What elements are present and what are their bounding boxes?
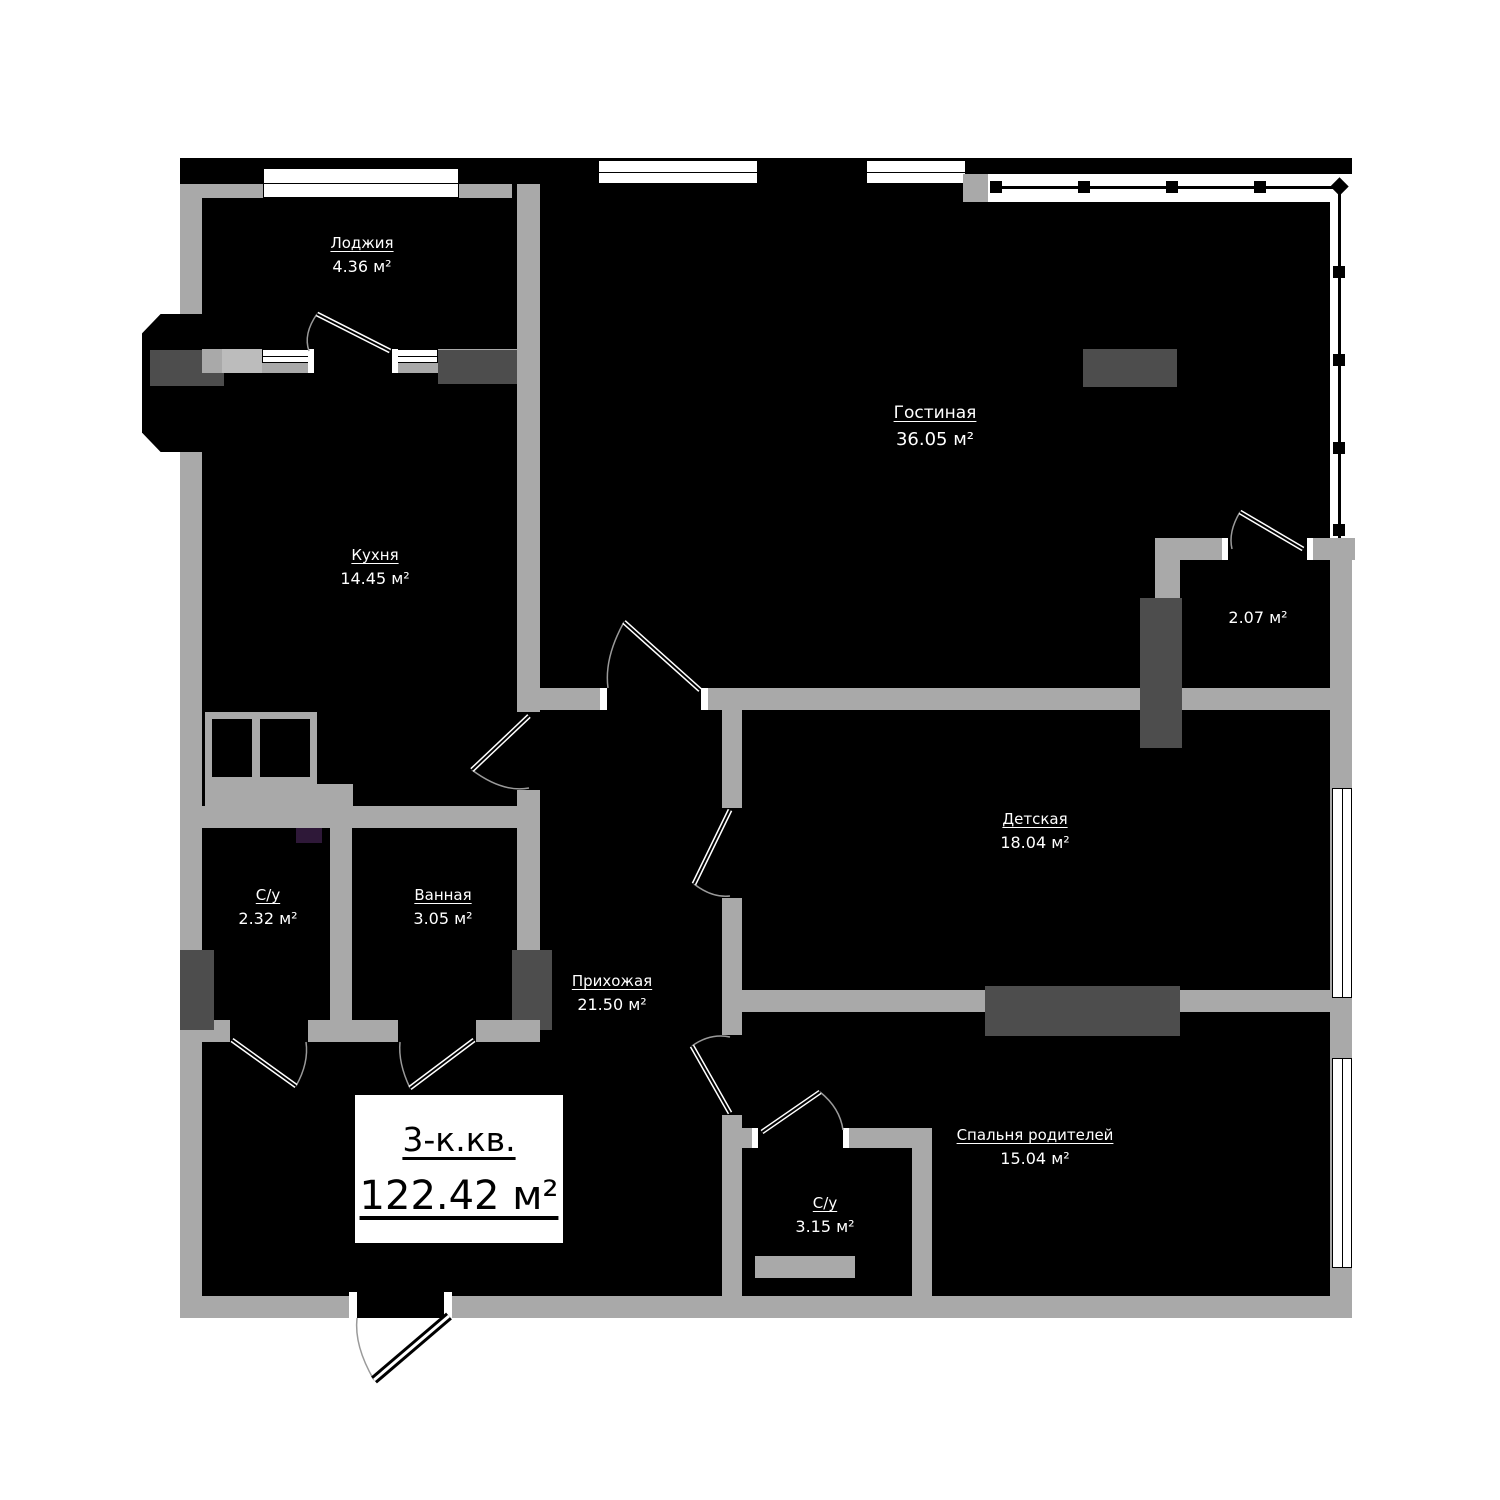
room-name: Прихожая	[572, 970, 652, 993]
room-name: Гостиная	[894, 400, 977, 426]
dark-block-bath-right	[512, 950, 552, 1030]
room-area: 2.07 м²	[1228, 606, 1287, 631]
room-label-kitchen: Кухня 14.45 м²	[340, 544, 409, 592]
room-label-children: Детская 18.04 м²	[1000, 808, 1069, 856]
room-label-wc2: С/у 3.15 м²	[795, 1192, 854, 1240]
room-area: 36.05 м²	[894, 426, 977, 454]
entrance-jamb	[444, 1292, 452, 1320]
room-name: Ванная	[413, 884, 472, 907]
door-leaf-entrance-core	[374, 1316, 449, 1380]
room-name: С/у	[795, 1192, 854, 1215]
window-living-2	[866, 160, 966, 184]
door-jamb	[752, 1128, 758, 1148]
room-label-living: Гостиная 36.05 м²	[894, 400, 977, 454]
balcony-strip-right	[1330, 202, 1352, 560]
room-area: 3.15 м²	[795, 1215, 854, 1240]
window-right-2	[1332, 1058, 1352, 1268]
room-area: 4.36 м²	[330, 255, 393, 280]
railing-post	[1333, 266, 1345, 278]
door-jamb	[1307, 538, 1313, 560]
door-jamb	[308, 349, 314, 373]
door-jamb	[1222, 538, 1228, 560]
room-name: С/у	[238, 884, 297, 907]
floor-plan: Лоджия 4.36 м² Гостиная 36.05 м² Кухня 1…	[0, 0, 1500, 1500]
room-label-wardrobe: 2.07 м²	[1228, 606, 1287, 631]
room-label-loggia: Лоджия 4.36 м²	[330, 232, 393, 280]
room-area: 18.04 м²	[1000, 831, 1069, 856]
room-label-bedroom: Спальня родителей 15.04 м²	[957, 1124, 1114, 1172]
room-area: 3.05 м²	[413, 907, 472, 932]
vent-marker	[296, 828, 322, 843]
dark-block-wardrobe	[1140, 598, 1182, 748]
dark-block-bedroom-top	[985, 986, 1180, 1036]
railing-post	[990, 181, 1002, 193]
dark-block-left-wall	[180, 950, 214, 1030]
apartment-area-label: 122.42 м²	[360, 1173, 559, 1219]
room-name: Кухня	[340, 544, 409, 567]
apartment-type-label: 3-к.кв.	[402, 1120, 515, 1159]
room-label-hallway: Прихожая 21.50 м²	[572, 970, 652, 1018]
wall-wc2-stub	[755, 1256, 855, 1278]
door-opening-living	[606, 688, 702, 710]
entrance-opening	[355, 1296, 448, 1318]
door-leaf-entrance	[374, 1316, 449, 1380]
window-living-1	[598, 160, 758, 184]
room-name: Детская	[1000, 808, 1069, 831]
door-opening-kitchen	[517, 712, 540, 790]
window-loggia-kitchen-1	[262, 349, 314, 363]
door-opening-wc1	[230, 1020, 308, 1042]
entrance-jamb	[349, 1292, 357, 1320]
wall-wc1-bath	[330, 806, 352, 1042]
railing-post	[1333, 524, 1345, 536]
railing-post	[1254, 181, 1266, 193]
wall-pier-light	[222, 349, 262, 373]
room-area: 15.04 м²	[957, 1147, 1114, 1172]
apartment-title-box: 3-к.кв. 122.42 м²	[352, 1092, 566, 1246]
door-arc-entrance	[357, 1318, 374, 1380]
room-name: Спальня родителей	[957, 1124, 1114, 1147]
door-opening-bath	[398, 1020, 476, 1042]
railing-post	[1078, 181, 1090, 193]
wall-kitchen-living	[517, 184, 540, 712]
dark-block-living	[1083, 349, 1177, 387]
wall-wc2-right	[912, 1128, 932, 1298]
door-jamb	[701, 688, 708, 710]
shaft-divider	[252, 712, 260, 784]
wall-bath-top	[202, 806, 517, 828]
wall-railing-junction-top	[963, 174, 988, 202]
railing-post	[1333, 354, 1345, 366]
door-jamb	[600, 688, 607, 710]
room-area: 2.32 м²	[238, 907, 297, 932]
door-jamb	[843, 1128, 849, 1148]
window-loggia	[263, 168, 459, 198]
door-opening-wardrobe	[1228, 538, 1308, 560]
room-name: Лоджия	[330, 232, 393, 255]
door-opening-bedroom	[722, 1035, 742, 1115]
room-label-wc1: С/у 2.32 м²	[238, 884, 297, 932]
door-opening-wc2	[758, 1128, 844, 1148]
door-jamb	[392, 349, 398, 373]
railing-post	[1333, 442, 1345, 454]
wall-hall-children	[722, 710, 742, 1296]
window-right-1	[1332, 788, 1352, 998]
window-loggia-kitchen-2	[393, 349, 438, 363]
door-opening-loggia	[314, 349, 393, 373]
room-label-bathroom: Ванная 3.05 м²	[413, 884, 472, 932]
room-area: 14.45 м²	[340, 567, 409, 592]
room-area: 21.50 м²	[572, 993, 652, 1018]
railing-post	[1166, 181, 1178, 193]
door-opening-children	[722, 808, 742, 898]
shaft-box	[205, 712, 317, 784]
